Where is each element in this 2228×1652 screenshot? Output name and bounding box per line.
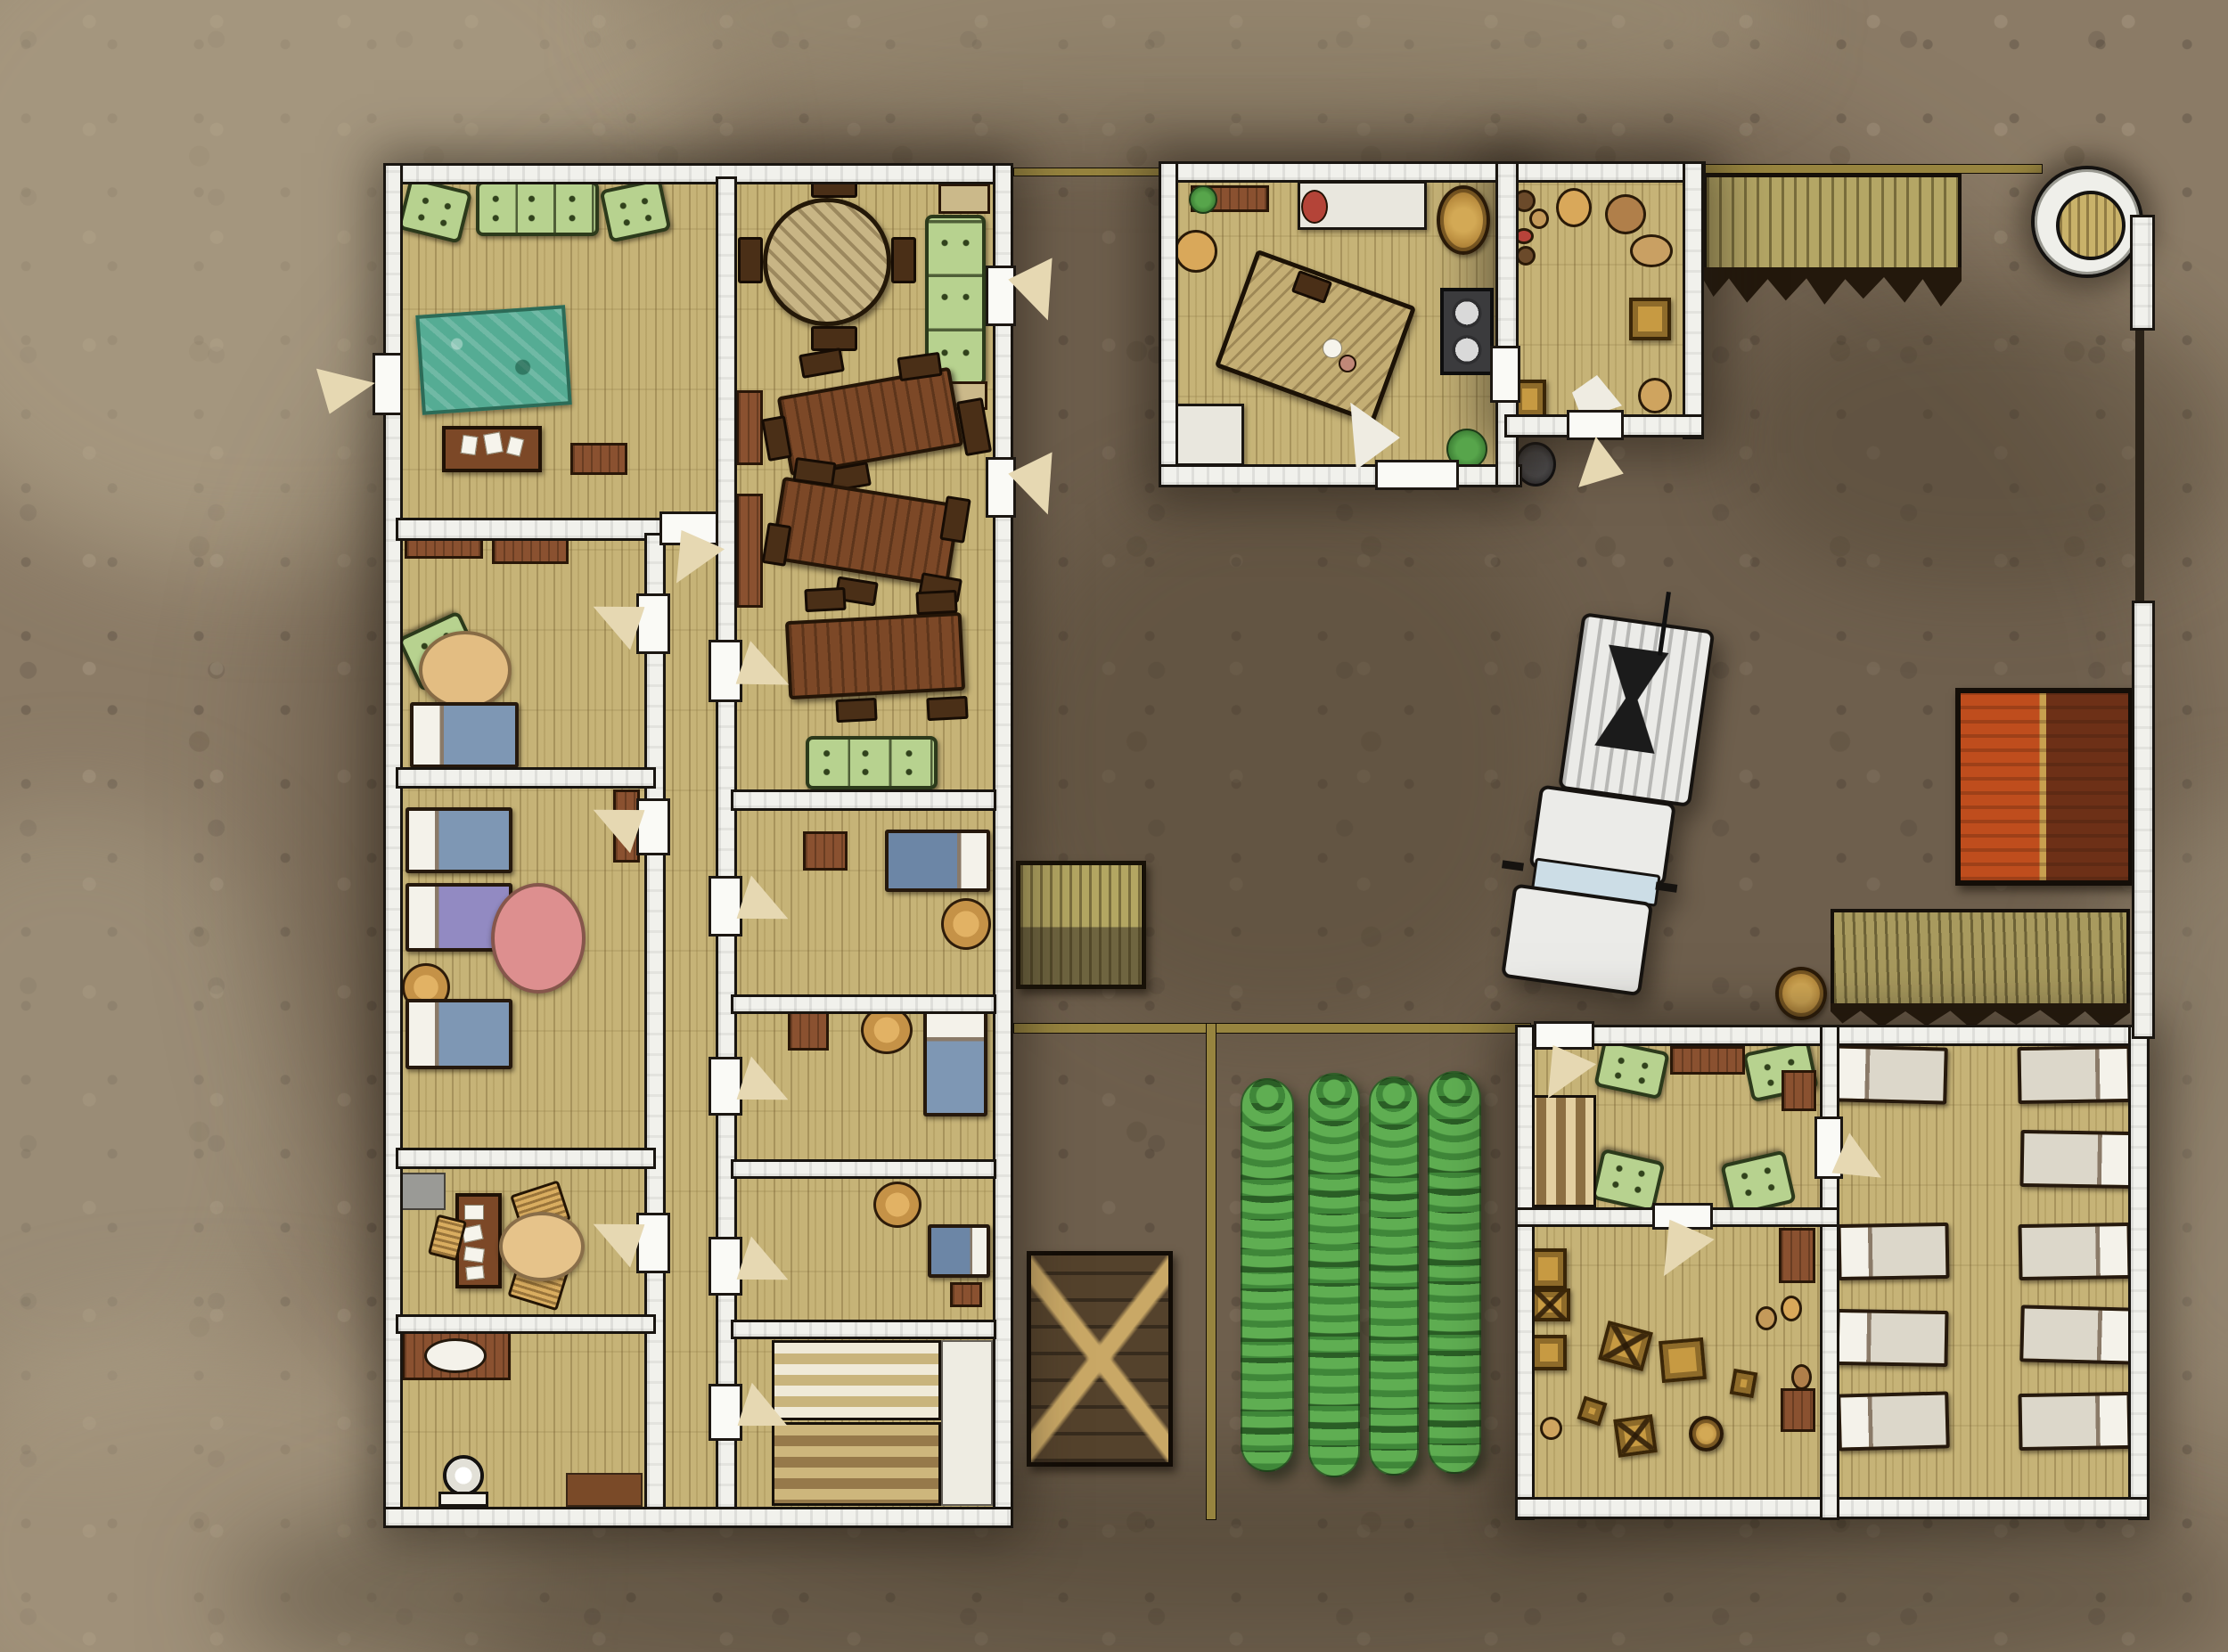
door-flap — [1535, 1045, 1598, 1110]
door-flap — [735, 640, 797, 698]
door-flap — [736, 1056, 797, 1114]
map-stage — [0, 0, 2228, 1652]
door-flap — [1650, 1219, 1716, 1288]
door-flap — [1007, 255, 1077, 328]
door-flap — [585, 1211, 645, 1269]
layer-flaps — [0, 0, 2228, 1652]
door-flap — [314, 351, 381, 414]
door-flap — [736, 1236, 797, 1294]
door-flap — [737, 1382, 796, 1439]
door-flap — [585, 593, 645, 651]
door-flap — [736, 875, 797, 933]
door-flap — [585, 797, 645, 855]
door-flap — [1321, 392, 1401, 472]
door-flap — [1007, 449, 1077, 522]
door-flap — [1831, 1132, 1892, 1190]
door-flap — [1564, 431, 1625, 489]
door-flap — [663, 530, 726, 595]
